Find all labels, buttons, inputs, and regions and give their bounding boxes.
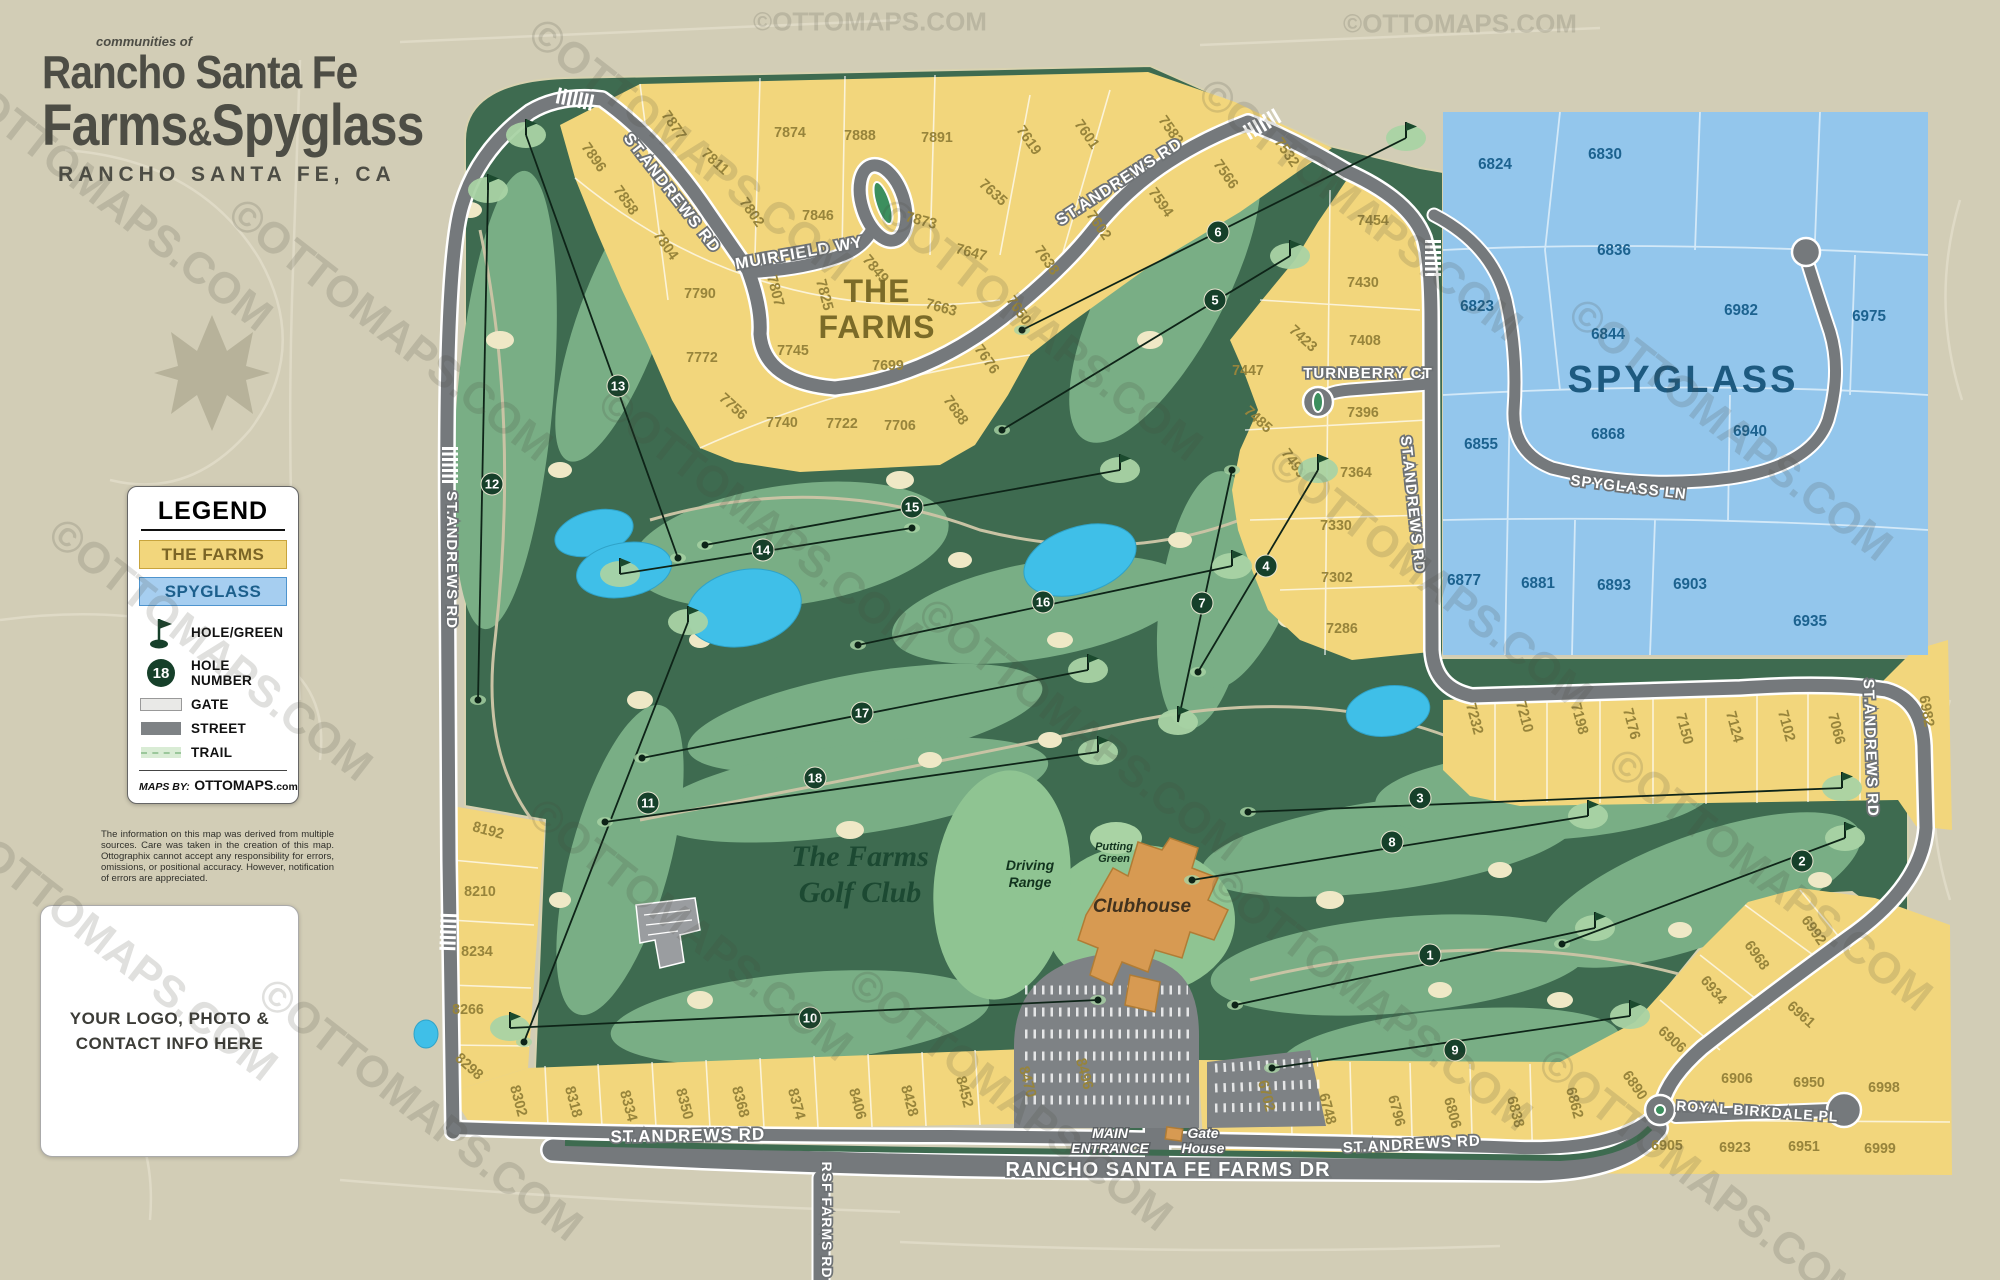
lot-number: 8210: [464, 884, 496, 900]
svg-text:15: 15: [905, 500, 919, 515]
logo-placeholder-line1: YOUR LOGO, PHOTO &: [70, 1006, 269, 1032]
lot-number: 7286: [1326, 621, 1358, 637]
lot-number: 6940: [1733, 423, 1767, 440]
svg-text:7: 7: [1198, 596, 1205, 611]
lot-number: 6881: [1521, 575, 1555, 592]
area-label: Gate: [1187, 1125, 1218, 1141]
svg-text:11: 11: [641, 796, 655, 811]
lot-number: 7772: [686, 350, 718, 366]
gate-marker: [1425, 242, 1441, 275]
lot-number: 7874: [774, 125, 807, 141]
brand-name: OTTOMAPS: [194, 777, 273, 793]
svg-text:6: 6: [1214, 225, 1221, 240]
gate-marker: [439, 915, 456, 949]
lot-number: 6935: [1793, 613, 1827, 630]
lot-number: 7891: [921, 130, 953, 146]
legend-hole-number-label: HOLE NUMBER: [191, 658, 287, 688]
lot-number: 7430: [1347, 275, 1379, 291]
lot-number: 7396: [1347, 405, 1379, 421]
lot-number: 7745: [777, 343, 809, 359]
course-map: 7896787778747888789178117858780278467873…: [0, 0, 2000, 1280]
area-label: THE: [844, 273, 911, 309]
svg-text:12: 12: [485, 477, 499, 492]
title-line2: Farms&Spyglass: [42, 97, 352, 155]
legend-spyglass-swatch: SPYGLASS: [139, 577, 287, 606]
area-label: FARMS: [819, 309, 936, 345]
area-label: Clubhouse: [1093, 896, 1192, 917]
svg-text:14: 14: [756, 543, 771, 558]
legend-hole-green-label: HOLE/GREEN: [191, 625, 283, 640]
title-line1: Rancho Santa Fe: [42, 49, 359, 95]
legend-row-gate: GATE: [139, 697, 287, 712]
map-title-block: communities of Rancho Santa Fe Farms&Spy…: [42, 34, 402, 187]
svg-text:5: 5: [1211, 293, 1218, 308]
lot-number: 6823: [1460, 298, 1494, 315]
gate-house-building: [1165, 1127, 1183, 1141]
svg-text:17: 17: [855, 706, 869, 721]
lot-number: 6903: [1673, 576, 1707, 593]
legend-spyglass-label: SPYGLASS: [165, 582, 262, 602]
area-label: ENTRANCE: [1071, 1140, 1149, 1156]
lot-number: 6999: [1864, 1141, 1896, 1157]
gate-marker: [442, 449, 458, 482]
brand-suffix: .com: [273, 781, 298, 793]
lot-number: 7454: [1357, 213, 1390, 229]
lot-number: 6830: [1588, 146, 1622, 163]
logo-placeholder-line2: CONTACT INFO HERE: [76, 1031, 264, 1057]
lot-number: 6975: [1852, 308, 1886, 325]
area-label: Green: [1098, 853, 1130, 865]
lot-number: 7706: [884, 418, 916, 434]
svg-text:16: 16: [1036, 595, 1050, 610]
svg-text:4: 4: [1262, 559, 1270, 574]
lot-number: 6893: [1597, 577, 1631, 594]
lot-number: 8266: [452, 1002, 484, 1018]
legend: LEGEND THE FARMS SPYGLASS HOLE/GREEN 18 …: [127, 486, 299, 804]
logo-placeholder-box: YOUR LOGO, PHOTO & CONTACT INFO HERE: [40, 905, 299, 1157]
legend-trail-label: TRAIL: [191, 745, 232, 760]
road-label: ST.ANDREWS RD: [443, 491, 460, 629]
map-page: 7896787778747888789178117858780278467873…: [0, 0, 2000, 1280]
area-label: Range: [1009, 874, 1052, 890]
lot-number: 7722: [826, 416, 858, 432]
lot-number: 8234: [461, 944, 494, 960]
lot-number: 7447: [1232, 363, 1264, 379]
legend-farms-swatch: THE FARMS: [139, 540, 287, 569]
svg-text:18: 18: [808, 771, 822, 786]
lot-number: 7364: [1340, 465, 1373, 481]
area-label: House: [1182, 1140, 1225, 1156]
lot-number: 6868: [1591, 426, 1625, 443]
lot-number: 7888: [844, 128, 876, 144]
lot-number: 6855: [1464, 436, 1498, 453]
maps-by-label: MAPS BY:: [139, 781, 190, 793]
legend-row-hole-green: HOLE/GREEN: [139, 615, 287, 649]
svg-text:10: 10: [803, 1011, 817, 1026]
lot-number: 6824: [1478, 156, 1512, 173]
lot-number: 6877: [1447, 572, 1481, 589]
road-label: ST.ANDREWS RD: [610, 1125, 765, 1147]
area-label: Putting: [1095, 841, 1133, 853]
lot-number: 6905: [1651, 1138, 1683, 1154]
lot-number: 6923: [1719, 1140, 1751, 1156]
svg-text:1: 1: [1426, 948, 1433, 963]
area-label: SPYGLASS: [1568, 359, 1799, 401]
svg-text:2: 2: [1798, 854, 1805, 869]
lot-number: 6906: [1721, 1071, 1753, 1087]
svg-text:9: 9: [1451, 1043, 1458, 1058]
road-label: RANCHO SANTA FE FARMS DR: [1005, 1159, 1330, 1181]
legend-row-trail: TRAIL: [139, 745, 287, 760]
area-label: MAIN: [1092, 1125, 1129, 1141]
lot-number: 6982: [1724, 302, 1758, 319]
legend-credit: MAPS BY: OTTOMAPS.com: [139, 770, 287, 795]
gate-icon: [140, 698, 182, 711]
area-label: Driving: [1006, 857, 1055, 873]
trail-icon: [141, 747, 181, 758]
lot-number: 7302: [1321, 570, 1353, 586]
svg-text:13: 13: [611, 379, 625, 394]
legend-farms-label: THE FARMS: [162, 545, 265, 565]
lot-number: 7699: [872, 358, 904, 374]
svg-text:3: 3: [1416, 791, 1423, 806]
lot-number: 7330: [1320, 518, 1352, 534]
area-label: The Farms: [791, 840, 929, 873]
road-label: RSF FARMS RD: [819, 1162, 835, 1279]
lot-number: 7846: [802, 208, 834, 224]
lot-number: 6836: [1597, 242, 1631, 259]
svg-text:8: 8: [1388, 835, 1395, 850]
lot-number: 7408: [1349, 333, 1381, 349]
lot-number: 6951: [1788, 1139, 1820, 1155]
lot-number: 6844: [1591, 326, 1625, 343]
lot-number: 7790: [684, 286, 716, 302]
ampersand: &: [187, 110, 211, 154]
area-label: Golf Club: [799, 876, 922, 909]
disclaimer-text: The information on this map was derived …: [101, 830, 334, 885]
title-subtitle: RANCHO SANTA FE, CA: [58, 163, 402, 187]
hole-number-icon: 18: [147, 659, 175, 687]
street-icon: [141, 722, 181, 735]
lot-number: 7740: [766, 415, 798, 431]
legend-heading: LEGEND: [139, 497, 287, 526]
compass-rose-icon: [154, 315, 270, 431]
hole-green-flag-icon: [139, 615, 183, 649]
lot-number: 6950: [1793, 1075, 1825, 1091]
legend-gate-label: GATE: [191, 697, 229, 712]
legend-row-street: STREET: [139, 721, 287, 736]
road-label: TURNBERRY CT: [1303, 365, 1433, 382]
legend-row-hole-number: 18 HOLE NUMBER: [139, 658, 287, 688]
lot-number: 6998: [1868, 1080, 1900, 1096]
legend-street-label: STREET: [191, 721, 246, 736]
